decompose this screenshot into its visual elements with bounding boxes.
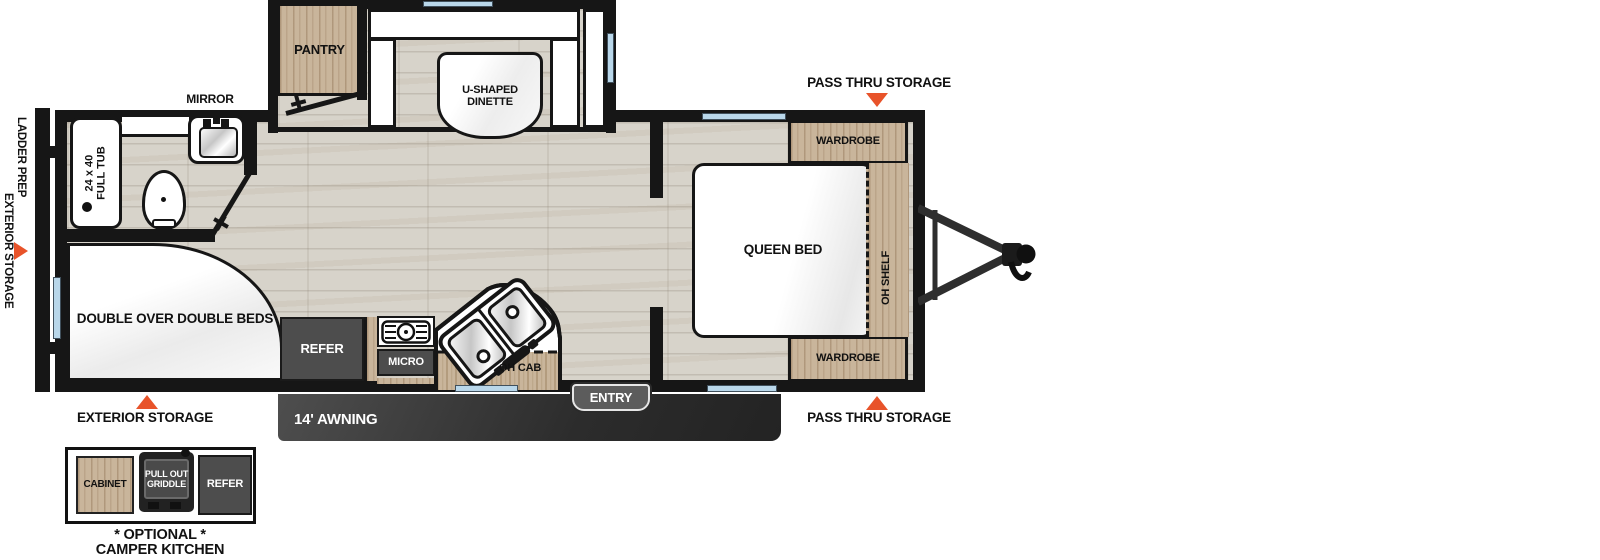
bedroom-wall-lower bbox=[650, 307, 663, 382]
bedroom-bottom-window bbox=[707, 385, 777, 392]
pass-thru-top-arrow-icon bbox=[866, 93, 888, 107]
oh-shelf-label: OH SHELF bbox=[881, 251, 893, 305]
micro-label: MICRO bbox=[388, 357, 424, 369]
toilet-flush-dot bbox=[161, 197, 166, 202]
queen-bed: QUEEN BED bbox=[692, 163, 874, 338]
awning-bar: 14' AWNING bbox=[278, 394, 781, 441]
inset-griddle-label: PULL OUT GRIDDLE bbox=[145, 469, 188, 489]
kitchen-wood-sliver bbox=[364, 317, 377, 381]
mirror-label: MIRROR bbox=[168, 93, 252, 106]
inset-griddle: PULL OUT GRIDDLE bbox=[139, 452, 194, 512]
bath-faucet-spout bbox=[213, 118, 220, 124]
inset-griddle-foot-left bbox=[148, 502, 159, 509]
bath-faucet-left bbox=[203, 119, 211, 128]
pass-thru-bottom-label: PASS THRU STORAGE bbox=[799, 411, 959, 425]
pass-thru-bottom-arrow-icon bbox=[866, 396, 888, 410]
dinette-bench-left bbox=[368, 38, 396, 128]
hitch-tongue bbox=[918, 196, 1043, 314]
queen-bed-label: QUEEN BED bbox=[744, 243, 822, 257]
wardrobe-top-label: WARDROBE bbox=[816, 136, 880, 148]
pantry-side-wall bbox=[357, 0, 367, 100]
slideout-right-window bbox=[607, 33, 614, 83]
ladder-prep-label: LADDER PREP bbox=[15, 117, 27, 197]
pantry-cabinet: PANTRY bbox=[277, 3, 362, 96]
dinette-label: U-SHAPED DINETTE bbox=[440, 85, 540, 109]
micro-base-wood bbox=[377, 378, 435, 384]
bedroom-top-window bbox=[702, 113, 786, 120]
awning-label: 14' AWNING bbox=[294, 412, 378, 428]
toilet-base bbox=[152, 219, 176, 228]
bunk-side-window bbox=[53, 277, 61, 339]
cooktop bbox=[377, 316, 435, 347]
inset-griddle-foot-right bbox=[170, 502, 181, 509]
inset-caption: * OPTIONAL * CAMPER KITCHEN bbox=[60, 528, 260, 558]
bath-counter bbox=[122, 117, 189, 137]
bathtub: 24 x 40 FULL TUB bbox=[70, 117, 122, 229]
camper-kitchen-inset: CABINET PULL OUT GRIDDLE REFER bbox=[65, 447, 256, 524]
inset-griddle-handle bbox=[181, 449, 190, 457]
rear-bumper-bar bbox=[35, 108, 50, 392]
dinette-table: U-SHAPED DINETTE bbox=[437, 52, 543, 139]
slideout-top-window bbox=[423, 1, 493, 7]
bath-wall-stub bbox=[244, 115, 257, 175]
pass-thru-top-label: PASS THRU STORAGE bbox=[799, 76, 959, 90]
bath-sink bbox=[188, 115, 245, 164]
cooktop-grate-icon bbox=[381, 320, 431, 344]
tub-drain bbox=[82, 202, 92, 212]
inset-refer: REFER bbox=[198, 455, 252, 515]
tub-label: 24 x 40 FULL TUB bbox=[84, 146, 108, 200]
wardrobe-bottom: WARDROBE bbox=[788, 336, 908, 382]
dinette-bench-right bbox=[550, 38, 580, 128]
inset-griddle-screen: PULL OUT GRIDDLE bbox=[144, 459, 189, 499]
bath-faucet-right bbox=[221, 119, 229, 128]
kitchen-bottom-window bbox=[455, 385, 518, 392]
bath-bottom-wall bbox=[67, 229, 215, 242]
bunk-label: DOUBLE OVER DOUBLE BEDS bbox=[70, 312, 280, 326]
inset-cabinet-label: CABINET bbox=[83, 480, 126, 491]
bath-sink-basin bbox=[199, 127, 238, 158]
entry-door-badge: ENTRY bbox=[572, 384, 650, 411]
pantry-label: PANTRY bbox=[294, 43, 345, 57]
inset-cabinet: CABINET bbox=[76, 456, 134, 514]
refer-label: REFER bbox=[300, 342, 343, 356]
exterior-storage-side-label: EXTERIOR STORAGE bbox=[2, 193, 14, 308]
entry-label: ENTRY bbox=[590, 391, 633, 405]
wardrobe-bottom-label: WARDROBE bbox=[816, 353, 880, 365]
exterior-storage-bottom-label: EXTERIOR STORAGE bbox=[65, 411, 225, 425]
dinette-bench-back bbox=[368, 9, 580, 40]
toilet bbox=[142, 170, 186, 230]
exterior-storage-side-arrow-icon bbox=[14, 242, 28, 260]
floorplan-diagram: PANTRY U-SHAPED DINETTE MIRROR 24 x 40 F… bbox=[0, 0, 1600, 560]
bedroom-wall-upper bbox=[650, 122, 663, 198]
dinette-end-panel bbox=[583, 9, 606, 128]
microwave: MICRO bbox=[377, 349, 435, 376]
wardrobe-top: WARDROBE bbox=[788, 120, 908, 164]
oh-cab-label: OH CAB bbox=[476, 363, 564, 375]
exterior-storage-bottom-arrow-icon bbox=[136, 395, 158, 409]
refrigerator: REFER bbox=[280, 317, 364, 381]
inset-refer-label: REFER bbox=[207, 479, 243, 491]
